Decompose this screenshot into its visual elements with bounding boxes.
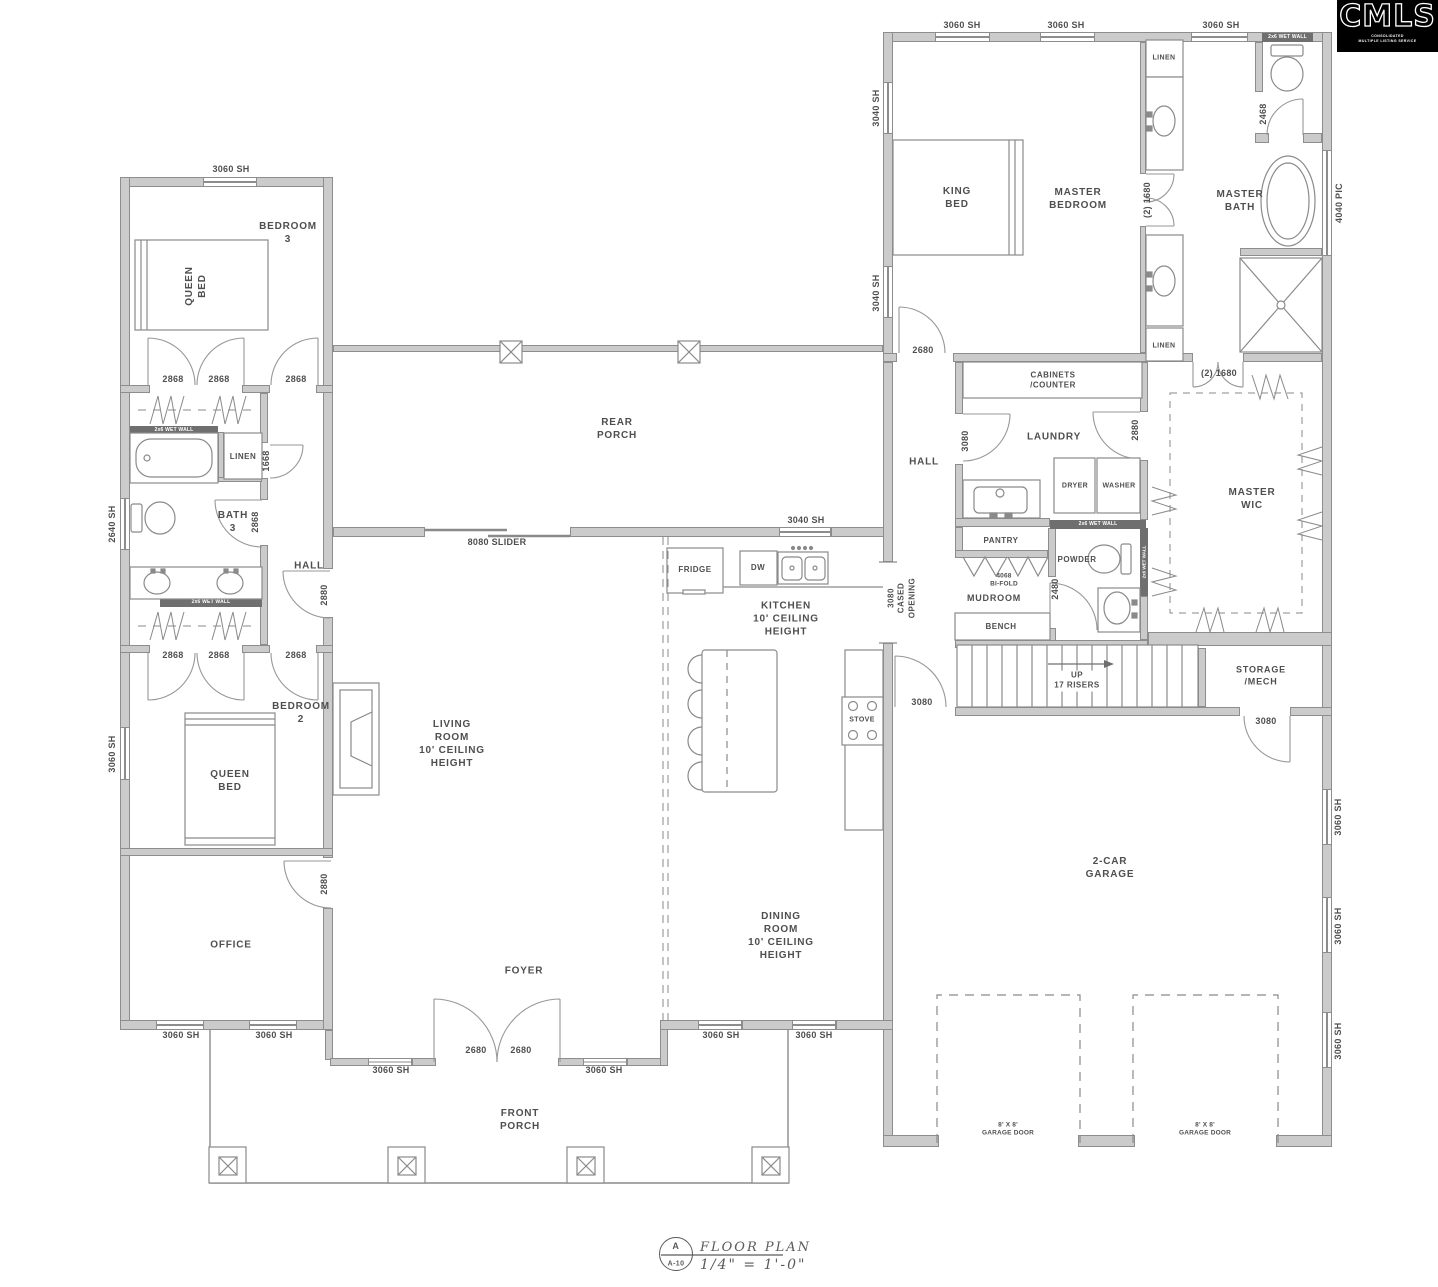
room-label-hall-left: HALL xyxy=(294,560,324,573)
window-label: 3060 SH xyxy=(212,164,249,176)
room-label-pantry: PANTRY xyxy=(984,536,1019,546)
room-label-hall-right: HALL xyxy=(909,456,939,469)
appliance-label-dw: DW xyxy=(751,563,765,573)
room-label-cabinets: CABINETS /COUNTER xyxy=(1030,371,1076,392)
door-label: 2680 xyxy=(465,1045,486,1057)
door-label: 2880 xyxy=(319,584,331,605)
door-swings xyxy=(148,99,1303,1062)
window-label: 3060 SH xyxy=(702,1030,739,1042)
room-label-linen: LINEN xyxy=(1153,341,1176,350)
room-label-powder: POWDER xyxy=(1058,555,1097,565)
rear-porch-posts xyxy=(500,341,700,363)
window-label: 3060 SH xyxy=(162,1030,199,1042)
sheet-number: A-10 xyxy=(668,1259,685,1268)
cmls-logo: CMLS CONSOLIDATED MULTIPLE LISTING SERVI… xyxy=(1337,0,1438,52)
kitchen-sink xyxy=(778,547,828,585)
room-label-bench: BENCH xyxy=(986,622,1017,632)
door-label: 2868 xyxy=(208,374,229,386)
appliance-label-washer: WASHER xyxy=(1102,481,1135,490)
room-label-master-bath: MASTER BATH xyxy=(1216,188,1263,214)
window-label: 3060 SH xyxy=(372,1065,409,1077)
room-label-master-bedroom: MASTER BEDROOM xyxy=(1049,186,1107,212)
kitchen-island xyxy=(688,650,777,792)
stairs-label: UP 17 RISERS xyxy=(1051,671,1102,692)
window-label: 3060 SH xyxy=(1202,20,1239,32)
window-label: 3060 SH xyxy=(585,1065,622,1077)
appliance-label-stove: STOVE xyxy=(846,715,878,724)
slider-door xyxy=(425,530,570,536)
bed-label: KING BED xyxy=(943,185,971,211)
bifold-label: 4068 BI-FOLD xyxy=(990,573,1018,590)
cmls-logo-subtitle: CONSOLIDATED MULTIPLE LISTING SERVICE xyxy=(1337,34,1438,43)
window-label: 3060 SH xyxy=(795,1030,832,1042)
door-label: 2880 xyxy=(1130,419,1142,440)
door-label: (2) 1680 xyxy=(1142,182,1154,218)
window-label: 3040 SH xyxy=(787,515,824,527)
room-label-office: OFFICE xyxy=(210,939,251,952)
detail-letter: A xyxy=(672,1241,679,1253)
door-label: 3080 xyxy=(960,430,972,451)
room-label-storage: STORAGE /MECH xyxy=(1236,664,1286,687)
powder-sink xyxy=(1098,588,1140,632)
door-label: 2868 xyxy=(162,374,183,386)
room-label-bedroom3: BEDROOM 3 xyxy=(259,220,317,246)
window-label: 3040 SH xyxy=(871,89,883,126)
door-label: 2868 xyxy=(208,650,229,662)
room-label-foyer: FOYER xyxy=(505,965,543,978)
toilet xyxy=(131,502,175,534)
garage-door-label: 8' X 8' GARAGE DOOR xyxy=(982,1122,1034,1139)
bed-label: QUEEN BED xyxy=(183,266,209,306)
door-label: 3080 xyxy=(911,697,932,709)
door-label: 3080 xyxy=(1255,716,1276,728)
window-label: 4040 PIC xyxy=(1334,183,1346,223)
room-label-living: LIVING ROOM 10' CEILING HEIGHT xyxy=(419,718,485,770)
cased-opening-label: 3080 CASED OPENING xyxy=(886,578,917,618)
front-porch-posts xyxy=(209,1147,789,1183)
master-toilet xyxy=(1271,45,1303,91)
door-label: 2868 xyxy=(285,650,306,662)
window-label: 3060 SH xyxy=(1333,1022,1345,1059)
room-label-bath3: BATH 3 xyxy=(218,509,248,535)
appliance-label-fridge: FRIDGE xyxy=(678,565,711,575)
fireplace xyxy=(333,683,379,795)
door-label-slider: 8080 SLIDER xyxy=(468,537,527,549)
window-label: 2640 SH xyxy=(107,505,119,542)
window-label: 3040 SH xyxy=(871,274,883,311)
door-label: 2680 xyxy=(912,345,933,357)
drawing-title: FLOOR PLAN xyxy=(700,1241,811,1255)
room-label-kitchen: KITCHEN 10' CEILING HEIGHT xyxy=(753,600,819,639)
window-label: 3060 SH xyxy=(943,20,980,32)
window-label: 3060 SH xyxy=(1333,907,1345,944)
room-separator-dashed xyxy=(663,537,668,1020)
room-label-rear-porch: REAR PORCH xyxy=(597,416,637,442)
room-label-linen: LINEN xyxy=(230,452,257,462)
door-label: 2468 xyxy=(1258,103,1270,124)
room-label-mudroom: MUDROOM xyxy=(967,593,1021,605)
room-label-garage: 2-CAR GARAGE xyxy=(1086,855,1135,881)
window-label: 3060 SH xyxy=(107,735,119,772)
door-label: 2868 xyxy=(285,374,306,386)
window-label: 3060 SH xyxy=(1047,20,1084,32)
window-label: 3060 SH xyxy=(255,1030,292,1042)
stove xyxy=(842,650,883,830)
bathtub xyxy=(130,433,218,483)
room-label-dining: DINING ROOM 10' CEILING HEIGHT xyxy=(748,910,814,962)
floor-plan: 2x6 WET WALL 2x6 WET WALL 2x6 WET WALL 2… xyxy=(0,0,1438,1287)
garage-door-label: 8' X 8' GARAGE DOOR xyxy=(1179,1122,1231,1139)
cmls-logo-text: CMLS xyxy=(1337,0,1438,34)
bed-label: QUEEN BED xyxy=(210,768,250,794)
window-label: 3060 SH xyxy=(1333,798,1345,835)
door-label: (2) 1680 xyxy=(1201,368,1237,380)
door-label: 2868 xyxy=(162,650,183,662)
door-label: 2880 xyxy=(319,873,331,894)
door-label: 1668 xyxy=(261,450,273,471)
room-label-linen: LINEN xyxy=(1153,53,1176,62)
room-label-bedroom2: BEDROOM 2 xyxy=(272,700,330,726)
soaking-tub xyxy=(1261,156,1315,246)
door-label: 2680 xyxy=(510,1045,531,1057)
drawing-scale: 1/4" = 1'-0" xyxy=(700,1258,806,1273)
double-vanity-sinks xyxy=(130,567,262,599)
laundry-sink xyxy=(963,480,1040,518)
door-label: 2868 xyxy=(250,511,262,532)
room-label-laundry: LAUNDRY xyxy=(1027,431,1081,444)
room-label-master-wic: MASTER WIC xyxy=(1228,486,1275,512)
door-label: 2480 xyxy=(1050,578,1062,599)
room-label-front-porch: FRONT PORCH xyxy=(500,1107,540,1133)
appliance-label-dryer: DRYER xyxy=(1062,481,1088,490)
shower xyxy=(1240,258,1322,352)
